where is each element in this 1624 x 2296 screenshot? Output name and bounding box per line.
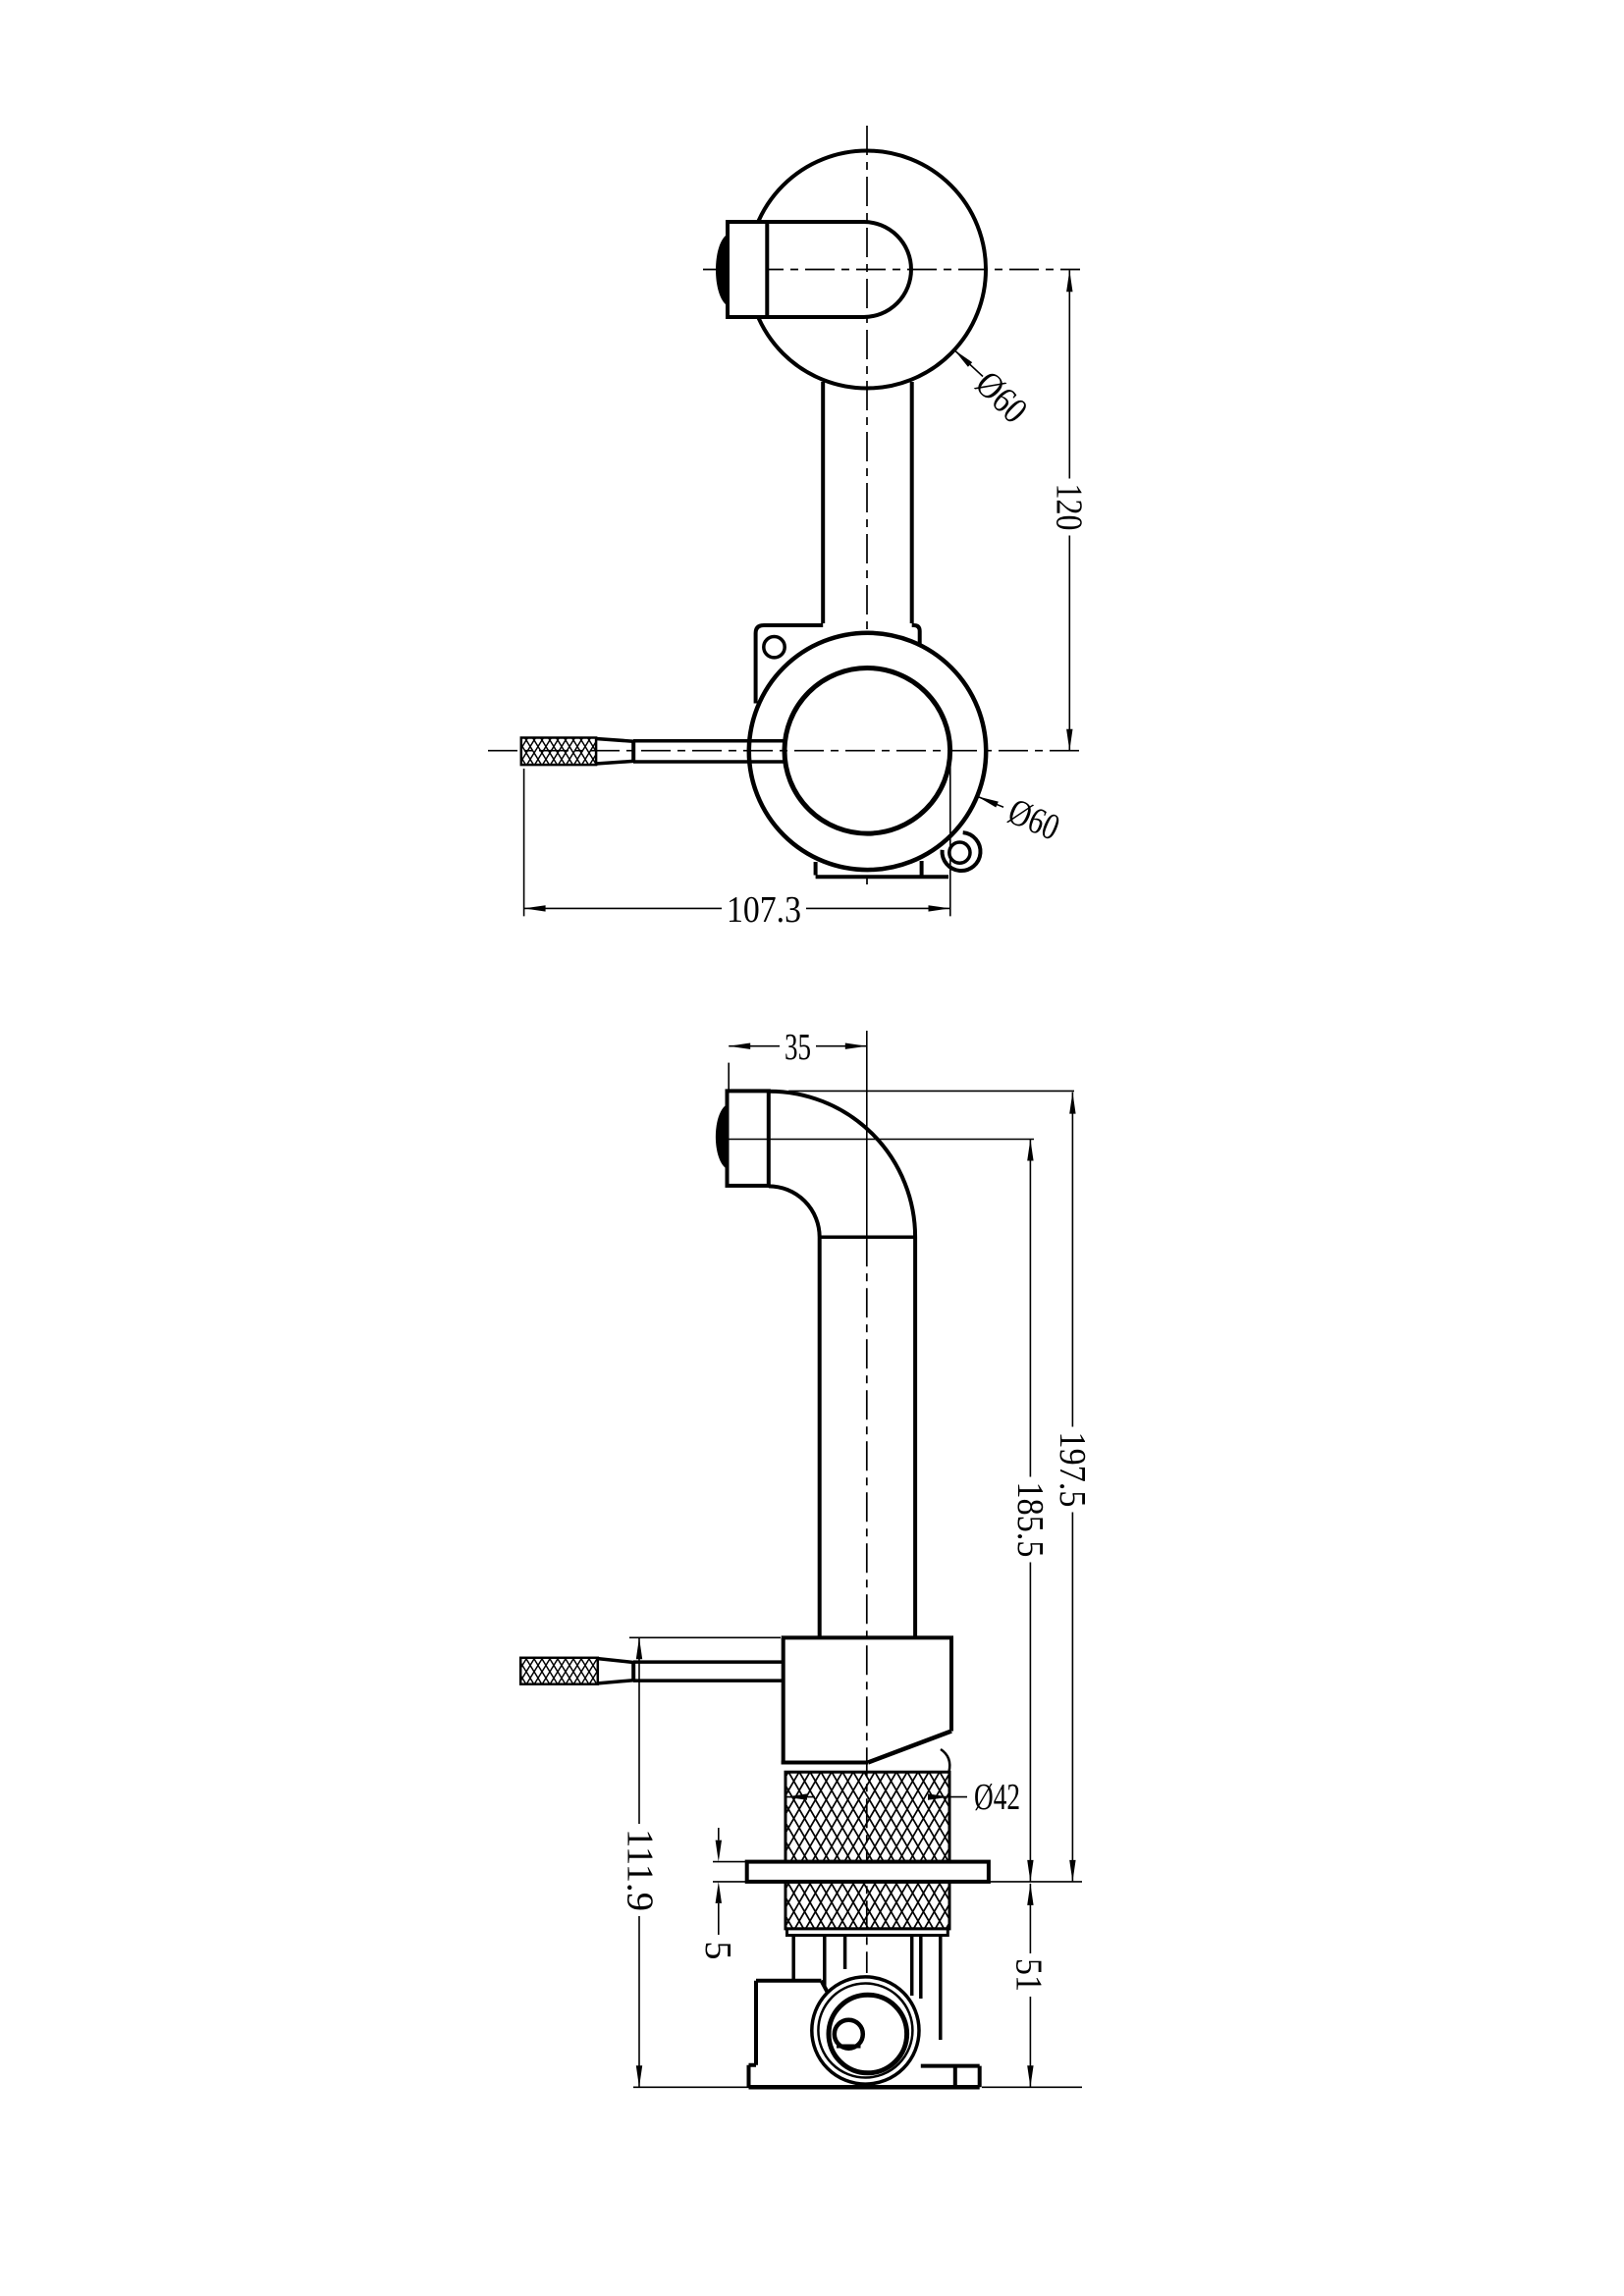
svg-text:185.5: 185.5	[1009, 1482, 1051, 1558]
svg-text:107.3: 107.3	[727, 889, 801, 931]
svg-text:120: 120	[1049, 484, 1090, 531]
svg-text:5: 5	[697, 1942, 738, 1960]
svg-text:197.5: 197.5	[1052, 1432, 1093, 1508]
svg-text:111.9: 111.9	[619, 1829, 660, 1911]
svg-text:51: 51	[1007, 1958, 1049, 1992]
svg-text:35: 35	[785, 1027, 811, 1068]
svg-text:Ø42: Ø42	[974, 1777, 1020, 1818]
